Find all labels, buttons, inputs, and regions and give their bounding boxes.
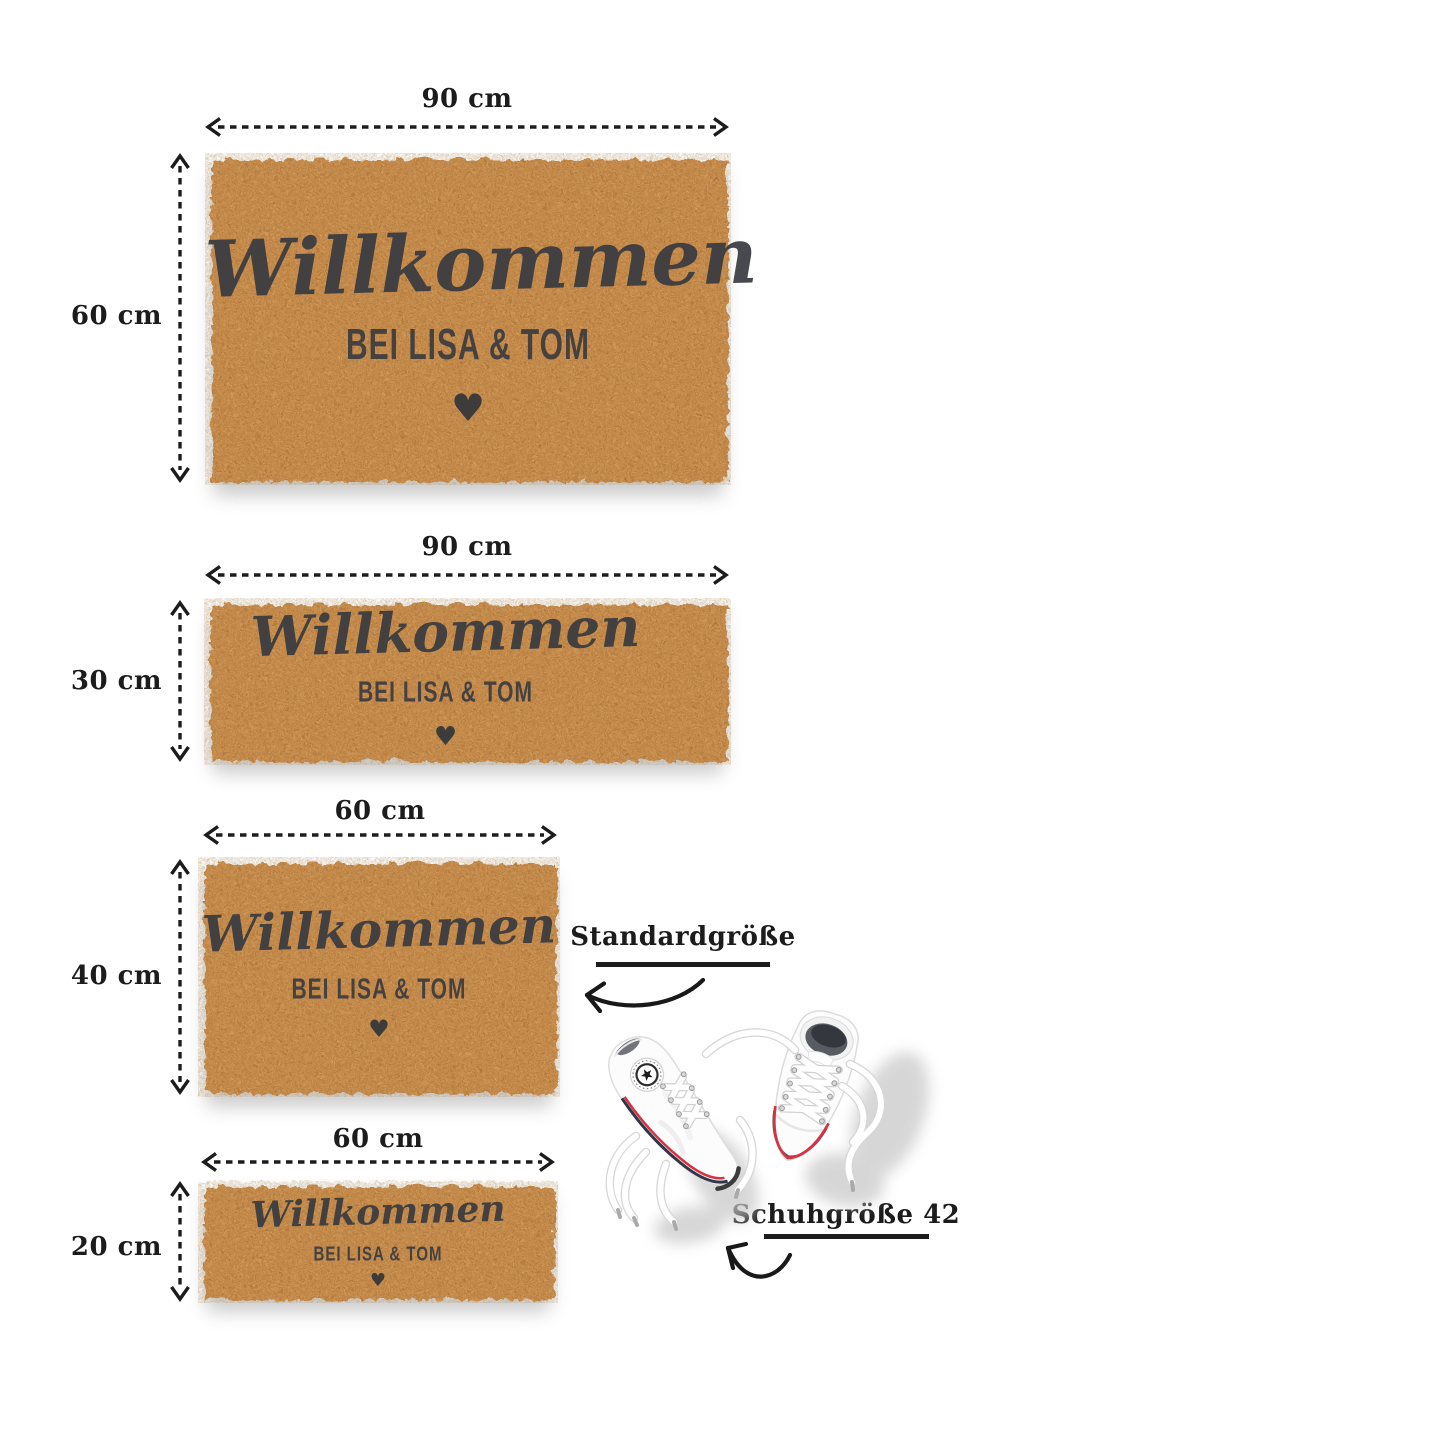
mat4-height-arrow: [168, 1180, 192, 1303]
mat4-print: Willkommen BEI LISA & TOM ♥: [198, 1180, 558, 1303]
mat1-script-text: Willkommen: [204, 218, 732, 310]
mat2-width-arrow: [203, 563, 731, 587]
mat1-width-label: 90 cm: [203, 84, 731, 114]
mat2-print: Willkommen BEI LISA & TOM ♥: [182, 598, 709, 765]
sneakers-illustration: [590, 1000, 990, 1330]
mat4-script-text: Willkommen: [198, 1189, 559, 1234]
mat2-names-text: BEI LISA & TOM: [182, 678, 709, 706]
standard-size-label: Standardgröße: [563, 922, 803, 952]
mat2-height-label: 30 cm: [42, 666, 162, 696]
left-sneaker: [597, 1022, 745, 1210]
mat3-height-arrow: [168, 857, 192, 1097]
mat3-print: Willkommen BEI LISA & TOM ♥: [198, 857, 560, 1097]
doormat-90x30: Willkommen BEI LISA & TOM ♥: [204, 598, 731, 765]
mat3-script-text: Willkommen: [197, 900, 560, 959]
mat3-width-label: 60 cm: [201, 796, 559, 826]
mat1-height-arrow: [168, 151, 192, 485]
mat3-height-label: 40 cm: [42, 961, 162, 991]
size-comparison-graphic: 90 cm 60 cm Willkommen BEI LISA & TOM ♥ …: [0, 0, 1445, 1445]
mat3-names-text: BEI LISA & TOM: [198, 975, 560, 1003]
mat1-height-label: 60 cm: [42, 301, 162, 331]
mat1-names-text: BEI LISA & TOM: [205, 324, 731, 368]
mat2-heart-icon: ♥: [182, 724, 709, 750]
doormat-90x60: Willkommen BEI LISA & TOM ♥: [205, 153, 731, 485]
mat4-names-text: BEI LISA & TOM: [198, 1244, 558, 1264]
mat1-width-arrow: [203, 115, 731, 139]
mat3-width-arrow: [201, 823, 559, 847]
mat4-heart-icon: ♥: [198, 1272, 558, 1290]
mat3-heart-icon: ♥: [198, 1017, 560, 1041]
doormat-60x20: Willkommen BEI LISA & TOM ♥: [198, 1180, 558, 1303]
mat2-script-text: Willkommen: [181, 597, 709, 666]
mat2-width-label: 90 cm: [203, 532, 731, 562]
mat4-width-arrow: [199, 1150, 557, 1174]
doormat-60x40: Willkommen BEI LISA & TOM ♥: [198, 857, 560, 1097]
mat1-heart-icon: ♥: [205, 389, 731, 427]
mat1-print: Willkommen BEI LISA & TOM ♥: [205, 153, 731, 485]
mat4-height-label: 20 cm: [42, 1232, 162, 1262]
